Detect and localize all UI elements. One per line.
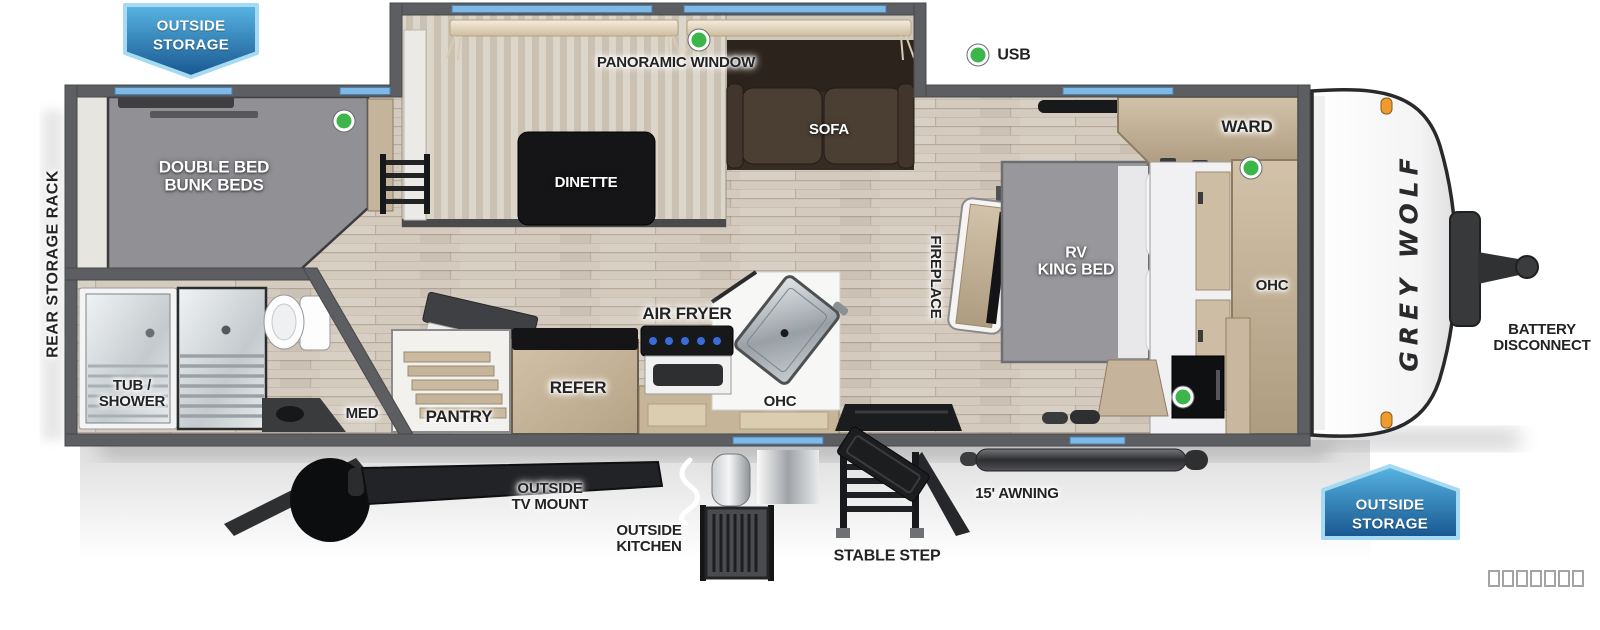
front-cap xyxy=(1312,90,1456,436)
window xyxy=(340,88,390,95)
bedroom-window xyxy=(1063,88,1173,95)
bed-sheet-band xyxy=(1118,166,1148,358)
pantry-shelf xyxy=(408,366,494,376)
outside-kitchen-cylinder xyxy=(757,450,819,504)
usb-dot-nightstand xyxy=(1172,386,1194,408)
bunk-ladder-rail-right xyxy=(424,154,430,214)
usb-legend-dot xyxy=(967,44,989,66)
burner xyxy=(649,337,657,345)
ohc-bedroom-label: OHC xyxy=(1256,278,1289,294)
placeholder-box xyxy=(1516,570,1528,587)
window-valance-left xyxy=(450,20,678,36)
usb-dot-dinette xyxy=(688,29,710,51)
cabinet-handle xyxy=(1216,370,1220,400)
slideout-side-panel xyxy=(404,30,426,220)
battery-disconnect-label: BATTERY DISCONNECT xyxy=(1493,322,1590,354)
burner xyxy=(697,337,705,345)
hitch-coupler xyxy=(1516,256,1538,278)
kitchen-cabinet-inset-right xyxy=(740,412,828,429)
sofa-arm-left xyxy=(727,84,743,168)
usb-dot-ward xyxy=(1240,157,1262,179)
ward-label: WARD xyxy=(1221,118,1272,136)
shower-door-knob xyxy=(222,326,231,335)
king-bed-label: RV KING BED xyxy=(1038,245,1115,280)
placeholder-glyph-boxes xyxy=(1488,570,1584,587)
tub-shower-label: TUB / SHOWER xyxy=(99,378,165,410)
usb-legend-label: USB xyxy=(997,46,1030,63)
bunk-beds-label: DOUBLE BED BUNK BEDS xyxy=(159,159,269,196)
shower-drain xyxy=(146,329,155,338)
outside-kitchen-label: OUTSIDE KITCHEN xyxy=(616,523,681,555)
usb-dot-bunk xyxy=(333,110,355,132)
pantry-shelf xyxy=(416,394,502,404)
slideout-wall-left xyxy=(390,3,402,97)
bunk-ladder-rung xyxy=(386,160,424,165)
window xyxy=(115,88,232,95)
bath-sink xyxy=(276,406,304,422)
wall-bath-divider xyxy=(65,268,315,280)
stable-step-label: STABLE STEP xyxy=(834,547,941,564)
outside-kitchen-line2: KITCHEN xyxy=(616,539,681,555)
outside-tv-mount-label: OUTSIDE TV MOUNT xyxy=(512,481,589,513)
fireplace-label: FIREPLACE xyxy=(927,235,943,318)
battery-line2: DISCONNECT xyxy=(1493,338,1590,354)
outside-kitchen-line1: OUTSIDE xyxy=(616,523,681,539)
kitchen-cabinet-inset-left xyxy=(648,404,706,426)
pantry-shelf xyxy=(412,380,498,390)
step-foot-right xyxy=(910,528,924,538)
wall-rear xyxy=(65,85,77,446)
placeholder-box xyxy=(1558,570,1570,587)
burner xyxy=(665,337,673,345)
tongue-jack xyxy=(1450,212,1480,326)
burner xyxy=(681,337,689,345)
bunk-label-line2: BUNK BEDS xyxy=(159,177,269,195)
slideout-wall-right xyxy=(914,3,926,97)
bunk-label-line1: DOUBLE BED xyxy=(159,159,269,177)
step-rail-left xyxy=(840,452,847,532)
floor-item xyxy=(1042,412,1068,424)
med-label: MED xyxy=(346,406,379,422)
air-fryer-label: AIR FRYER xyxy=(642,305,731,323)
rear-storage-rack-label: REAR STORAGE RACK xyxy=(44,170,61,358)
clearance-marker-top xyxy=(1381,98,1392,114)
slideout-window-right xyxy=(684,6,886,13)
floorplan-canvas: OUTSIDE STORAGE OUTSIDE STORAGE PANORAMI… xyxy=(0,0,1600,630)
floor-item xyxy=(1070,410,1100,424)
brand-logo: GREY WOLF xyxy=(1396,152,1423,372)
awning-roll xyxy=(976,449,1186,471)
step-foot-left xyxy=(836,528,850,538)
bunk-ladder-rung xyxy=(386,173,424,178)
battery-line1: BATTERY xyxy=(1493,322,1590,338)
placeholder-box xyxy=(1502,570,1514,587)
griddle-ribs xyxy=(714,514,756,572)
hinge xyxy=(1198,192,1203,204)
bunk-rail xyxy=(150,111,258,118)
king-bed-line1: RV xyxy=(1038,245,1115,262)
placeholder-box xyxy=(1488,570,1500,587)
window xyxy=(1070,437,1125,444)
pantry-shelf xyxy=(404,352,490,362)
sofa-label: SOFA xyxy=(809,122,849,138)
badge-bottom-line1: OUTSIDE xyxy=(1356,497,1425,514)
king-bed-line2: KING BED xyxy=(1038,262,1115,279)
tub-label-line2: SHOWER xyxy=(99,394,165,410)
slideout-window-left xyxy=(452,6,652,13)
badge-top-line2: STORAGE xyxy=(153,37,229,54)
bunk-ladder-rail-left xyxy=(380,154,386,214)
wall-front xyxy=(1298,85,1310,446)
cabinet-door-upper xyxy=(1196,172,1230,290)
awning-bracket xyxy=(960,452,978,466)
dinette-label: DINETTE xyxy=(555,175,618,191)
bunk-ladder-rung xyxy=(386,186,424,191)
wardrobe-door-open xyxy=(1226,318,1250,434)
window xyxy=(733,437,823,444)
toilet-seat xyxy=(272,304,296,340)
bunk-wall-panel xyxy=(77,97,109,270)
placeholder-box xyxy=(1530,570,1542,587)
placeholder-box xyxy=(1544,570,1556,587)
nightstand xyxy=(1098,360,1168,416)
hinge xyxy=(1198,330,1203,342)
awning-end-cap xyxy=(1184,450,1208,470)
step-rung xyxy=(847,506,913,512)
outside-kitchen-canister xyxy=(712,454,750,506)
shower-door-slats xyxy=(180,356,264,416)
cap-inner-shade xyxy=(1313,96,1325,430)
oven-tray xyxy=(653,364,723,386)
shower-door xyxy=(178,288,266,429)
tv-mount-hub xyxy=(348,468,364,496)
placeholder-box xyxy=(1572,570,1584,587)
window-valance-right xyxy=(687,20,911,36)
clearance-marker-bottom xyxy=(1381,412,1392,428)
refrigerator-countertop xyxy=(512,328,638,350)
tv-mount-line1: OUTSIDE xyxy=(512,481,589,497)
panoramic-window-label: PANORAMIC WINDOW xyxy=(597,55,755,71)
refer-label: REFER xyxy=(550,379,607,397)
badge-bottom-line2: STORAGE xyxy=(1352,516,1428,533)
pantry-label: PANTRY xyxy=(426,408,493,426)
awning-label: 15' AWNING xyxy=(975,486,1059,502)
burner xyxy=(713,337,721,345)
sofa-arm-right xyxy=(898,84,914,168)
tv-mount-line2: TV MOUNT xyxy=(512,497,589,513)
badge-top-line1: OUTSIDE xyxy=(157,18,226,35)
bunk-ladder-rung xyxy=(386,199,424,204)
floorplan-drawing xyxy=(0,0,1600,630)
tub-label-line1: TUB / xyxy=(99,378,165,394)
ohc-kitchen-label: OHC xyxy=(764,394,797,410)
